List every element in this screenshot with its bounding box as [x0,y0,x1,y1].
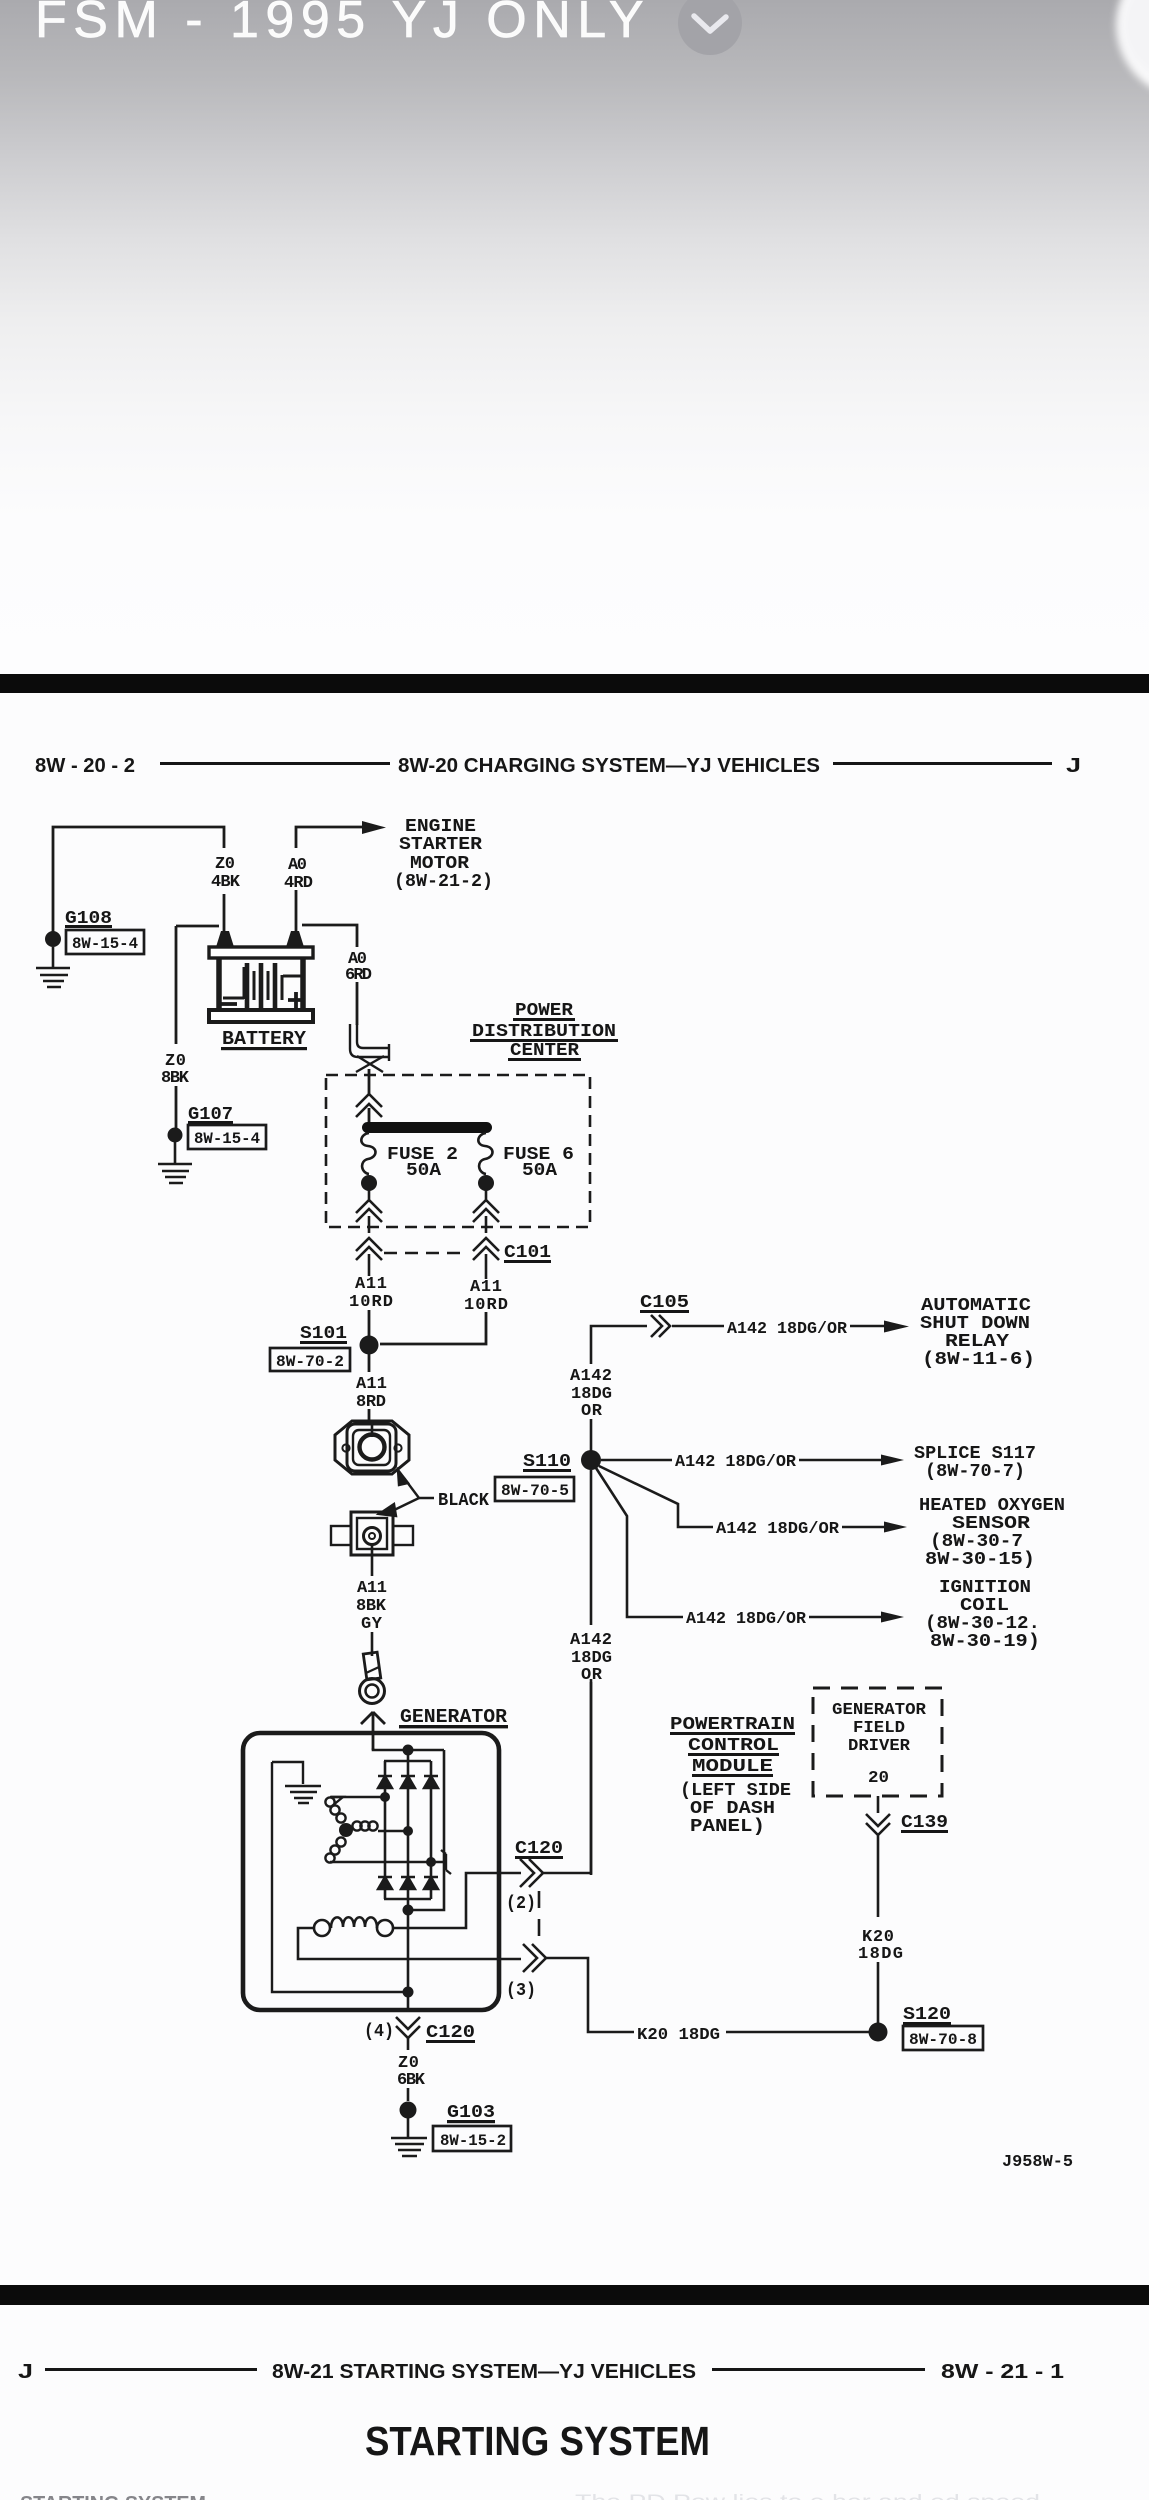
svg-text:SENSOR: SENSOR [952,1514,1030,1534]
svg-text:18DG: 18DG [858,1945,903,1964]
svg-text:8W-30-19): 8W-30-19) [930,1632,1040,1652]
svg-text:GENERATOR: GENERATOR [400,1706,508,1728]
svg-text:J: J [1066,755,1081,777]
svg-text:8W-70-5: 8W-70-5 [501,1482,569,1500]
svg-text:8W-21 STARTING SYSTEM—YJ VEHIC: 8W-21 STARTING SYSTEM—YJ VEHICLES [272,2361,696,2383]
svg-text:(8W-21-2): (8W-21-2) [394,872,493,892]
svg-text:8W-20 CHARGING SYSTEM—YJ VEHIC: 8W-20 CHARGING SYSTEM—YJ VEHICLES [398,755,820,777]
svg-text:IGNITION: IGNITION [939,1578,1031,1598]
svg-text:STARTER: STARTER [399,835,482,855]
svg-text:GENERATOR: GENERATOR [832,1701,927,1720]
svg-text:(8W-11-6): (8W-11-6) [922,1350,1035,1370]
svg-text:20: 20 [868,1769,889,1788]
svg-text:AUTOMATIC: AUTOMATIC [921,1296,1031,1316]
svg-text:GY: GY [361,1615,383,1634]
svg-text:50A: 50A [406,1161,441,1181]
svg-text:6BK: 6BK [397,2071,426,2090]
svg-text:A11: A11 [355,1275,387,1294]
svg-text:8BK: 8BK [356,1597,387,1616]
svg-text:A0: A0 [288,856,307,875]
svg-text:8W-70-2: 8W-70-2 [276,1353,344,1371]
svg-text:SHUT DOWN: SHUT DOWN [920,1314,1030,1334]
svg-text:PANEL): PANEL) [690,1817,765,1837]
svg-text:BATTERY: BATTERY [222,1028,307,1050]
svg-text:ENGINE: ENGINE [405,817,476,837]
svg-text:8W-15-4: 8W-15-4 [194,1130,260,1148]
svg-text:(2): (2) [506,1894,536,1914]
svg-text:J: J [18,2361,33,2383]
svg-text:6RD: 6RD [345,966,372,985]
svg-text:A11: A11 [470,1278,502,1297]
svg-text:8RD: 8RD [356,1393,386,1412]
svg-text:FIELD: FIELD [853,1719,905,1738]
svg-text:A142 18DG/OR: A142 18DG/OR [716,1520,840,1539]
svg-text:8BK: 8BK [161,1069,190,1088]
svg-text:10RD: 10RD [349,1293,393,1312]
svg-text:8W - 21 - 1: 8W - 21 - 1 [941,2361,1064,2383]
svg-text:A11: A11 [356,1375,387,1394]
svg-text:J958W-5: J958W-5 [1002,2153,1073,2172]
svg-text:BLACK: BLACK [438,1491,489,1511]
svg-text:OR: OR [581,1402,603,1421]
svg-text:(8W-70-7): (8W-70-7) [925,1462,1025,1482]
svg-text:(LEFT SIDE: (LEFT SIDE [680,1781,791,1801]
svg-text:8W-70-8: 8W-70-8 [909,2031,977,2049]
svg-text:A142: A142 [570,1367,612,1386]
svg-text:OR: OR [581,1666,603,1685]
svg-text:The PD Pow lies to e her: The PD Pow lies to e her and ed speed [575,2492,1040,2500]
svg-text:HEATED OXYGEN: HEATED OXYGEN [919,1496,1065,1516]
svg-text:8W-15-2: 8W-15-2 [440,2132,506,2150]
svg-text:A142: A142 [570,1631,612,1650]
svg-text:8W - 20 - 2: 8W - 20 - 2 [35,755,135,777]
svg-text:(4): (4) [364,2022,394,2042]
svg-text:MOTOR: MOTOR [410,854,469,874]
svg-text:A142 18DG/OR: A142 18DG/OR [675,1453,797,1472]
svg-text:(8W-30-7: (8W-30-7 [930,1532,1023,1552]
svg-text:STARTING SYSTEM: STARTING SYSTEM [365,2418,710,2464]
svg-text:8W-15-4: 8W-15-4 [72,935,138,953]
svg-text:A142 18DG/OR: A142 18DG/OR [727,1320,848,1339]
svg-text:A142 18DG/OR: A142 18DG/OR [686,1610,807,1629]
svg-text:RELAY: RELAY [945,1332,1009,1352]
svg-text:SPLICE S117: SPLICE S117 [914,1444,1036,1464]
svg-text:A11: A11 [357,1579,387,1598]
svg-text:STARTING SYSTEM: STARTING SYSTEM [20,2493,206,2500]
svg-text:50A: 50A [522,1161,557,1181]
svg-text:Z0: Z0 [215,855,235,874]
svg-text:4RD: 4RD [284,874,313,893]
svg-text:K20 18DG: K20 18DG [637,2026,720,2045]
svg-text:(8W-30-12.: (8W-30-12. [925,1614,1040,1634]
svg-text:(3): (3) [506,1981,536,2001]
svg-text:DRIVER: DRIVER [848,1737,911,1756]
svg-text:COIL: COIL [960,1596,1009,1616]
svg-text:OF DASH: OF DASH [690,1799,775,1819]
svg-text:4BK: 4BK [211,873,241,892]
svg-text:8W-30-15): 8W-30-15) [925,1550,1035,1570]
